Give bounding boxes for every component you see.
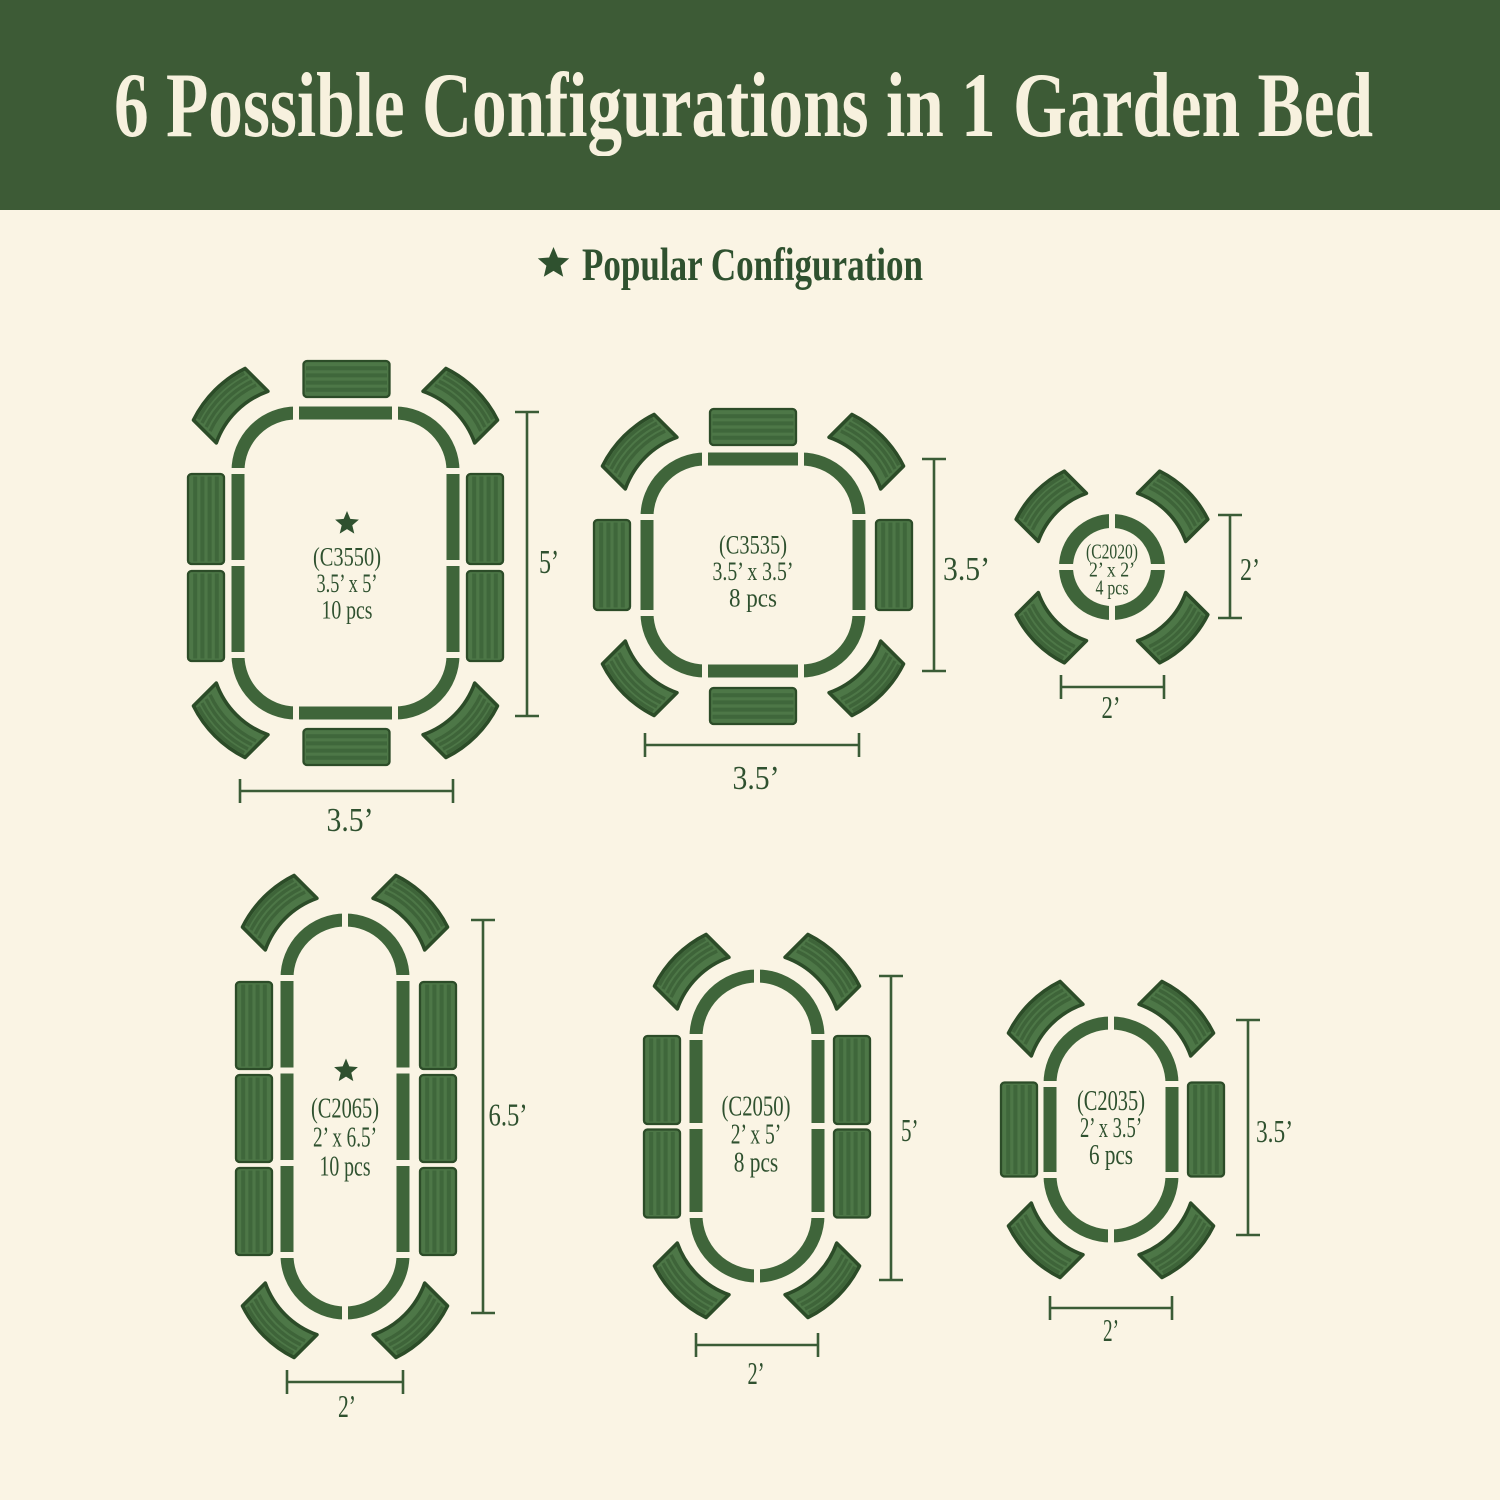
svg-text:3.5’: 3.5’ <box>943 551 990 588</box>
svg-text:3.5’ x 5’: 3.5’ x 5’ <box>317 569 378 598</box>
svg-text:10 pcs: 10 pcs <box>320 1152 371 1183</box>
svg-text:2’: 2’ <box>1240 552 1260 587</box>
svg-text:3.5’: 3.5’ <box>733 760 780 797</box>
svg-text:(C2065): (C2065) <box>311 1094 379 1125</box>
svg-text:2’: 2’ <box>1102 690 1121 725</box>
svg-text:Popular Configuration: Popular Configuration <box>582 239 923 291</box>
svg-text:6.5’: 6.5’ <box>489 1098 528 1133</box>
svg-text:3.5’: 3.5’ <box>327 802 374 839</box>
svg-text:8 pcs: 8 pcs <box>729 584 777 613</box>
svg-text:6 pcs: 6 pcs <box>1089 1140 1133 1171</box>
svg-text:(C3550): (C3550) <box>313 543 381 572</box>
svg-text:6 Possible Configurations in 1: 6 Possible Configurations in 1 Garden Be… <box>114 54 1373 156</box>
svg-text:2’: 2’ <box>338 1389 356 1424</box>
svg-text:(C3535): (C3535) <box>719 531 787 560</box>
svg-text:4 pcs: 4 pcs <box>1096 576 1129 600</box>
svg-text:3.5’ x 3.5’: 3.5’ x 3.5’ <box>713 557 794 586</box>
svg-text:2’ x 6.5’: 2’ x 6.5’ <box>313 1123 377 1154</box>
svg-text:(C2050): (C2050) <box>722 1092 791 1123</box>
svg-text:2’: 2’ <box>748 1356 765 1391</box>
svg-text:5’: 5’ <box>901 1113 919 1148</box>
svg-text:8 pcs: 8 pcs <box>734 1148 779 1179</box>
svg-text:10 pcs: 10 pcs <box>322 596 373 625</box>
svg-text:2’: 2’ <box>1103 1313 1119 1348</box>
svg-text:5’: 5’ <box>539 544 559 581</box>
svg-text:2’ x 5’: 2’ x 5’ <box>731 1120 782 1151</box>
svg-text:3.5’: 3.5’ <box>1256 1114 1293 1149</box>
